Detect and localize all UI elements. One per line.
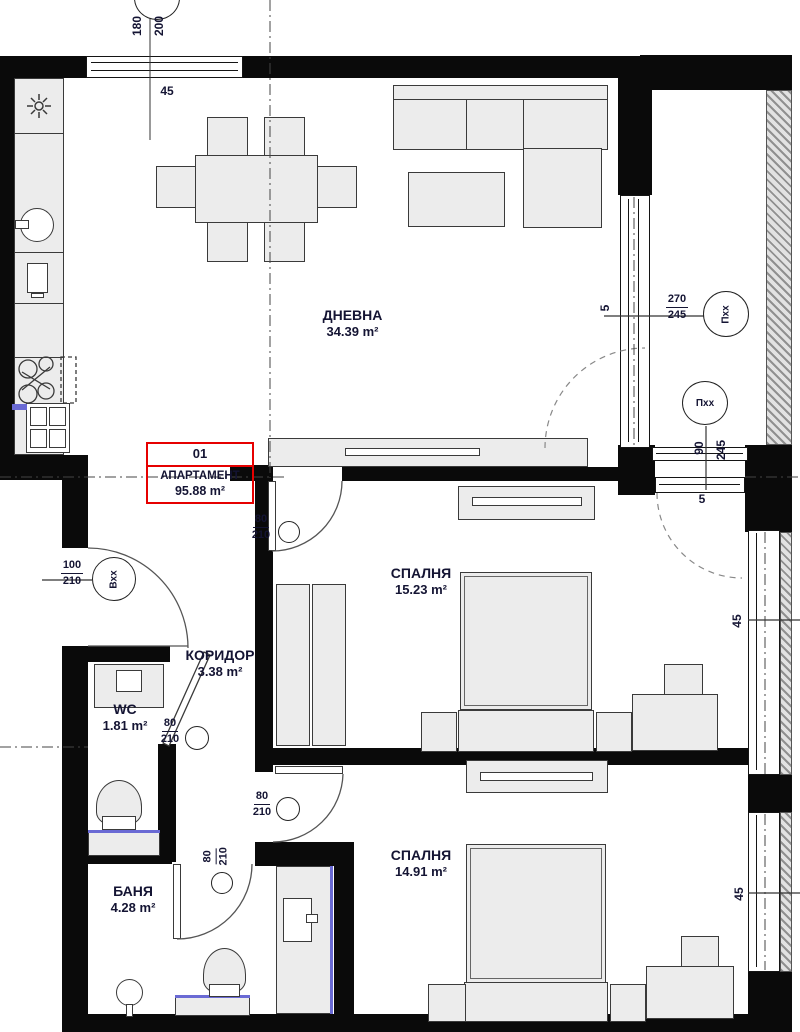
room-label-bath: БАНЯ 4.28 m² (93, 882, 173, 917)
window-top (86, 56, 243, 78)
wall-bedroom1-top (342, 467, 618, 481)
sofa-chaise (523, 148, 602, 228)
window-bedroom1 (748, 530, 780, 775)
bedroom1-nightstand (421, 712, 457, 752)
dim-bedroom1-door: 80 210 (243, 512, 279, 543)
bath-toilet-tank (209, 984, 240, 997)
kitchen-faucet (15, 220, 29, 229)
apartment-area: 95.88 m² (148, 484, 252, 499)
dim-bedroom2-door-width: 80 (254, 789, 270, 805)
door-tag-circle-entrance: Вxx (92, 557, 136, 601)
wall-terrace-window-cap (618, 75, 652, 195)
wall-bath-bedroom2 (334, 866, 354, 1014)
room-living-name: ДНЕВНА (300, 306, 405, 324)
window-terrace-line (638, 199, 639, 442)
wall-top-right (640, 55, 792, 90)
bedroom1-dresser (632, 694, 718, 751)
bedroom1-wardrobe (276, 584, 310, 746)
dim-top-window-width: 180 (130, 6, 146, 46)
window-tag-terrace: Пxx (721, 305, 732, 323)
sofa-body (393, 85, 608, 150)
window-bedroom2 (748, 812, 780, 972)
parapet-right-1 (780, 532, 792, 775)
dim-wc-door-height: 210 (161, 732, 179, 747)
bedroom1-bed (460, 572, 592, 710)
wall-wc-north (62, 646, 170, 662)
door-terrace-bedroom1-line (659, 484, 740, 485)
kitchen-oven-cell (49, 407, 66, 426)
dim-top-window-offset: 45 (152, 84, 182, 100)
window-top-line (91, 70, 238, 71)
door-tag-terrace: Пxx (696, 398, 714, 409)
bedroom2-bed (466, 844, 606, 983)
dim-wall-tick-bedroom2: 45 (732, 874, 748, 914)
door-tag-circle-terrace: Пxx (682, 381, 728, 425)
wall-kitchen-bottom (0, 455, 88, 480)
apartment-name: АПАРТАМЕНТ (148, 467, 252, 484)
dim-terrace-window-offset: 5 (598, 288, 614, 328)
bedroom2-nightstand (428, 984, 466, 1022)
door-ref-circle (276, 797, 300, 821)
wall-junction-block (618, 445, 655, 495)
window-bedroom2-line (756, 815, 757, 967)
bedroom1-headboard (458, 710, 594, 752)
dim-wall-tick-bedroom1: 45 (730, 601, 746, 641)
kitchen-appliance (27, 263, 48, 293)
dining-chair (207, 220, 248, 262)
dining-chair (207, 117, 248, 159)
bedroom2-dresser-box (681, 936, 719, 967)
bath-toilet-base (175, 997, 250, 1016)
kitchen-oven-cell (30, 407, 47, 426)
kitchen-fixture-blue (12, 404, 27, 410)
room-living-area: 34.39 m² (300, 324, 405, 341)
room-label-bedroom1: СПАЛНЯ 15.23 m² (366, 564, 476, 599)
bedroom2-dresser (646, 966, 734, 1019)
kitchen-counter-divider (15, 303, 63, 304)
bath-shower-blue-line (330, 866, 333, 1014)
dining-chair (316, 166, 357, 208)
dim-wc-door: 80 210 (153, 716, 187, 747)
room-label-bedroom2: СПАЛНЯ 14.91 m² (366, 846, 476, 881)
room-bedroom2-name: СПАЛНЯ (366, 846, 476, 864)
room-corridor-name: КОРИДОР (165, 646, 275, 664)
dining-table (195, 155, 318, 223)
window-tag-circle-terrace: Пxx (703, 291, 749, 337)
room-corridor-area: 3.38 m² (165, 664, 275, 681)
kitchen-counter-divider (15, 357, 63, 358)
wc-toilet-tank (102, 816, 136, 830)
dining-chair (264, 220, 305, 262)
dim-top-window-height: 200 (152, 6, 168, 46)
door-ref-circle (278, 521, 300, 543)
bath-sink-stem (126, 1004, 133, 1017)
kitchen-counter-divider (15, 252, 63, 253)
room-label-corridor: КОРИДОР 3.38 m² (165, 646, 275, 681)
dim-terrace-window-width: 270 (666, 292, 688, 308)
wall-wc-east (158, 744, 176, 862)
window-terrace (620, 195, 650, 448)
bath-sink (116, 979, 143, 1006)
bedroom1-nightstand (596, 712, 632, 752)
dining-chair (264, 117, 305, 159)
kitchen-counter-divider (15, 133, 63, 134)
bedroom2-headboard (464, 982, 608, 1022)
wc-washbasin (116, 670, 142, 692)
living-sideboard-handle (345, 448, 480, 456)
bedroom1-dresser-box (664, 664, 703, 695)
apartment-info-box: 01 АПАРТАМЕНТ 95.88 m² (146, 442, 254, 504)
bedroom1-wardrobe (312, 584, 346, 746)
dim-terrace-door-width: 90 (692, 428, 708, 468)
wc-toilet-blue-line (88, 830, 160, 833)
door-ref-circle (211, 872, 233, 894)
room-bath-area: 4.28 m² (93, 900, 173, 917)
window-top-line (91, 62, 238, 63)
door-tag-entrance: Вxx (108, 570, 119, 588)
parapet-balcony (766, 90, 792, 445)
room-bath-name: БАНЯ (93, 882, 173, 900)
room-label-living: ДНЕВНА 34.39 m² (300, 306, 405, 341)
sofa-back-line (394, 99, 607, 100)
bath-shower-knob (306, 914, 318, 923)
dim-entrance-height: 210 (63, 574, 81, 589)
door-leaf-bedroom2 (275, 766, 343, 774)
door-terrace-bedroom1 (655, 477, 745, 493)
coffee-table (408, 172, 505, 227)
wall-left-entrance-upper (62, 480, 88, 548)
dim-entrance-width: 100 (61, 558, 83, 574)
wc-toilet-base (88, 832, 160, 856)
window-bedroom1-line (756, 533, 757, 770)
dim-terrace-window: 270 245 (652, 292, 702, 323)
floor-plan: 180 200 45 ДНЕВНА 34.39 m² 01 АПАРТАМЕНТ… (0, 0, 800, 1032)
dim-terrace-door-height: 245 (714, 430, 730, 470)
dim-bath-door-height: 210 (217, 847, 232, 865)
dim-bedroom2-door-height: 210 (253, 805, 271, 820)
wall-right-corner-block (745, 445, 792, 532)
sofa-seat-divider (523, 99, 524, 149)
room-bedroom1-name: СПАЛНЯ (366, 564, 476, 582)
dim-wc-door-width: 80 (162, 716, 178, 732)
dim-bedroom1-door-width: 80 (253, 512, 269, 528)
wall-top (243, 56, 640, 78)
door-ref-circle (185, 726, 209, 750)
wall-bath-nook-block (255, 842, 354, 866)
dining-chair (156, 166, 197, 208)
dim-bedroom2-door: 80 210 (245, 789, 279, 820)
dim-terrace-door-offset: 5 (690, 492, 714, 506)
door-leaf-bath (173, 864, 181, 939)
dim-bath-door-width: 80 (201, 848, 217, 864)
dim-bedroom1-door-height: 210 (252, 528, 270, 543)
wall-left-upper (0, 56, 14, 455)
room-bedroom1-area: 15.23 m² (366, 582, 476, 599)
apartment-number: 01 (148, 444, 252, 467)
kitchen-appliance-foot (31, 293, 44, 298)
kitchen-oven-cell (30, 429, 47, 448)
window-terrace-line (628, 199, 629, 442)
kitchen-oven-cell (49, 429, 66, 448)
sofa-seat-divider (466, 99, 467, 149)
dim-bath-door: 80 210 (201, 836, 232, 876)
room-bedroom2-area: 14.91 m² (366, 864, 476, 881)
dim-entrance-door: 100 210 (52, 558, 92, 589)
parapet-right-2 (780, 812, 792, 972)
dim-terrace-window-height: 245 (668, 308, 686, 323)
bedroom1-cabinet-handle (472, 497, 582, 506)
bedroom2-nightstand (610, 984, 646, 1022)
bedroom2-cabinet-handle (480, 772, 593, 781)
